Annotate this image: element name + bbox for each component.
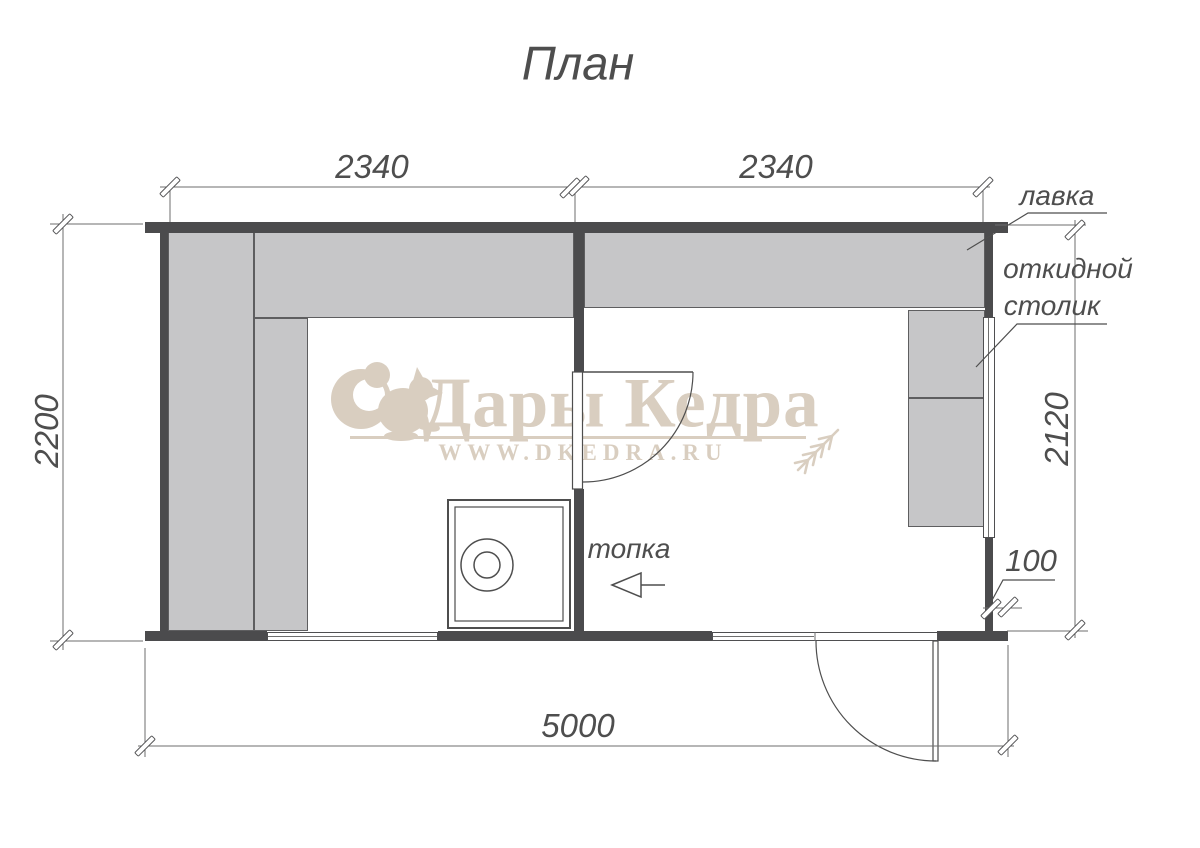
label-firebox: топка xyxy=(588,533,671,565)
dimension-left-height: 2200 xyxy=(28,394,66,467)
firebox-arrow-icon xyxy=(612,573,665,597)
label-bench: лавка xyxy=(1020,180,1095,212)
dimension-top-right: 2340 xyxy=(739,148,812,186)
window-glazing-lines xyxy=(268,318,989,641)
interior-door xyxy=(573,372,694,489)
label-folding-table-line2: столик xyxy=(1004,290,1101,322)
dimension-lines xyxy=(50,187,1088,757)
page-title: План xyxy=(522,36,635,91)
dimension-right-bench: 2120 xyxy=(1038,392,1076,465)
entrance-door xyxy=(816,641,938,761)
label-folding-table-line1: откидной xyxy=(1003,253,1133,285)
dimension-top-left: 2340 xyxy=(335,148,408,186)
dimension-right-offset: 100 xyxy=(1005,543,1057,579)
stove xyxy=(448,500,570,628)
dimension-total-width: 5000 xyxy=(541,707,614,745)
floor-plan-canvas: Дары Кедра WWW.DKEDRA.RU xyxy=(0,0,1200,848)
dimension-ticks xyxy=(53,176,1086,757)
